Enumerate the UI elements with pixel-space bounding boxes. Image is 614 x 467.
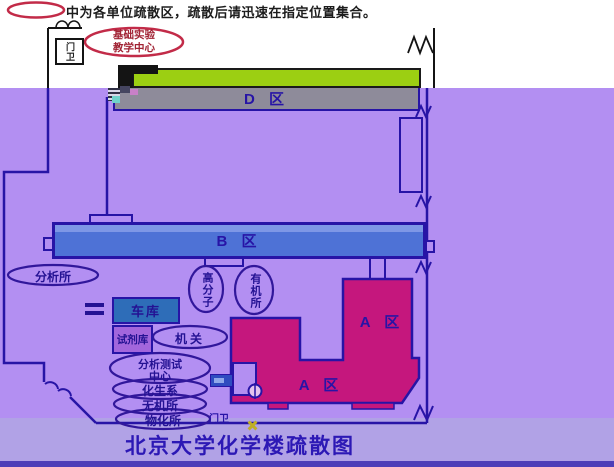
gatehouse-top: 门卫	[55, 38, 84, 65]
compression-artifact	[108, 86, 150, 103]
bottom-strip	[0, 461, 614, 467]
gatehouse-bottom-label: 门卫	[209, 410, 229, 425]
double-door-icon	[56, 21, 80, 28]
window-zigzag-icon-top-right	[408, 37, 433, 53]
garage-building: 车库	[112, 297, 180, 324]
legend-oval	[8, 3, 64, 18]
admin-office-label: 机关	[153, 330, 227, 347]
d-zone-gray-bar: D 区	[113, 88, 420, 111]
garage-label: 车库	[131, 301, 161, 320]
page-title: 北京大学化学楼疏散图	[85, 430, 395, 460]
evacuation-map: D 区 B 区 A 区 A 区 车库 试剂库 门卫 中为各单位疏散区，疏散后请迅…	[0, 0, 614, 467]
analysis-institute-label: 分析所	[10, 268, 96, 285]
legend-note: 中为各单位疏散区，疏散后请迅速在指定位置集合。	[66, 2, 566, 21]
polymer-label: 高分子	[199, 268, 215, 312]
a-zone-label-upper: A 区	[352, 311, 412, 332]
reagent-store-building: 试剂库	[112, 325, 153, 354]
equals-mark	[85, 303, 104, 316]
organic-institute-label: 有机所	[247, 268, 263, 314]
phys-chem-institute-label: 物化所	[116, 412, 210, 429]
small-gate-box	[210, 374, 233, 387]
base-teaching-center-line1: 基础实验	[96, 29, 172, 41]
reagent-store-label: 试剂库	[117, 332, 149, 347]
b-zone-label: B 区	[216, 230, 261, 251]
gatehouse-top-label: 门卫	[64, 42, 77, 62]
d-zone-label: D 区	[244, 88, 289, 109]
base-teaching-center-line2: 教学中心	[96, 42, 172, 54]
d-zone-black-corner-v	[118, 65, 133, 88]
a-zone-label-lower: A 区	[291, 374, 351, 395]
b-zone-building: B 区	[52, 222, 426, 259]
d-zone-green-bar	[132, 68, 421, 88]
